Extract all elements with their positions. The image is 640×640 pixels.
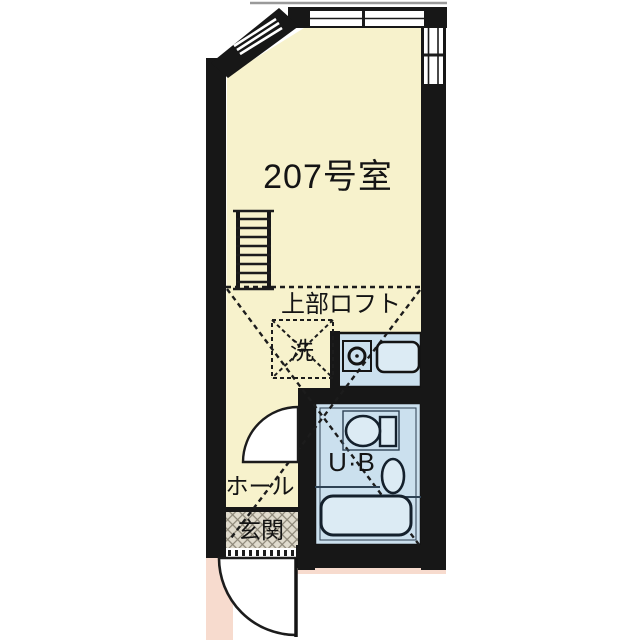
entrance-label: 玄関	[238, 517, 284, 543]
toilet-bowl	[346, 416, 380, 446]
hall-label: ホール	[226, 473, 295, 499]
ladder-rail-right	[267, 210, 271, 290]
window-top-center-tick	[362, 11, 365, 26]
wall-hall-entrance-line	[206, 507, 298, 512]
floorplan-svg: 207号室 上部ロフト 洗 U·B ホール 玄関	[0, 0, 640, 640]
unit-bath-label: U·B	[328, 447, 376, 477]
washer-label: 洗	[290, 338, 314, 365]
toilet-icon	[346, 416, 396, 446]
window-right	[424, 28, 443, 84]
wall-bottom	[296, 545, 446, 568]
floorplan-canvas: 207号室 上部ロフト 洗 U·B ホール 玄関	[0, 0, 640, 640]
ladder-rail-left	[236, 210, 240, 290]
wall-right	[421, 7, 446, 570]
window-right-center-tick	[424, 54, 443, 57]
window-top	[310, 11, 424, 26]
wall-below-vanity	[298, 388, 446, 404]
loft-label: 上部ロフト	[281, 291, 401, 318]
wall-vanity-left-divider	[330, 331, 340, 390]
room-number-label: 207号室	[263, 158, 393, 196]
wall-left	[206, 58, 226, 558]
bathtub-icon	[321, 496, 411, 535]
toilet-tank	[380, 417, 396, 446]
washbasin-icon	[382, 459, 404, 493]
vanity-bowl	[377, 342, 419, 372]
wall-hall-bath-divider	[298, 390, 315, 570]
